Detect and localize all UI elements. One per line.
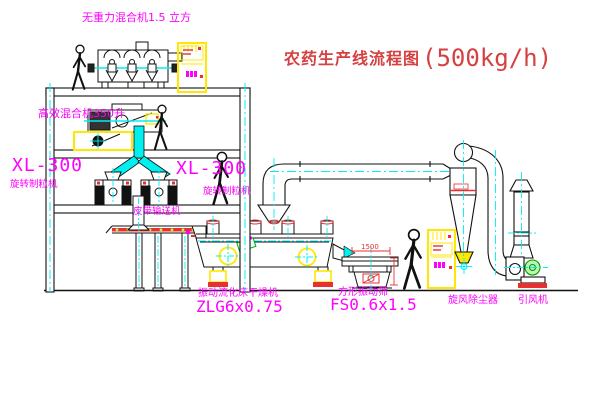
title-capacity: (500kg/h)	[422, 44, 552, 72]
control-cabinet-ground	[428, 230, 455, 288]
fluid-bed-dryer	[196, 216, 355, 287]
label-granulator-right-model: XL-300	[176, 160, 247, 178]
title-chinese: 农药生产线流程图	[284, 45, 420, 72]
label-wet-mixer: 高效混合机350升	[38, 108, 125, 119]
label-gravity-mixer: 无重力混合机1.5 立方	[82, 12, 191, 23]
label-granulator-left-name: 旋转制粒机	[10, 180, 58, 190]
label-screen-dimension: 1500	[361, 244, 379, 251]
gravity-mixer	[88, 42, 182, 88]
belt-conveyor	[106, 226, 206, 291]
label-cyclone: 旋风除尘器	[448, 296, 498, 306]
label-dryer-model: ZLG6x0.75	[196, 299, 283, 315]
label-fan: 引风机	[518, 296, 548, 306]
process-flow-diagram: 农药生产线流程图 (500kg/h) 无重力混合机1.5 立方 高效混合机350…	[0, 0, 600, 403]
control-cabinet-top	[178, 43, 206, 92]
person-ground	[404, 230, 420, 289]
label-belt-conveyor: 皮带输送机	[133, 207, 181, 217]
person-top-floor	[73, 45, 85, 89]
label-granulator-left-model: XL-300	[12, 157, 83, 175]
cyclone-separator	[450, 140, 476, 274]
granulator-right	[141, 168, 177, 205]
granulator-left	[95, 168, 131, 205]
induced-draft-fan	[504, 257, 548, 288]
label-screen-model: FS0.6x1.5	[330, 297, 417, 313]
diagram-title: 农药生产线流程图 (500kg/h)	[284, 44, 552, 72]
label-granulator-right-name: 旋转制粒机	[203, 187, 251, 197]
